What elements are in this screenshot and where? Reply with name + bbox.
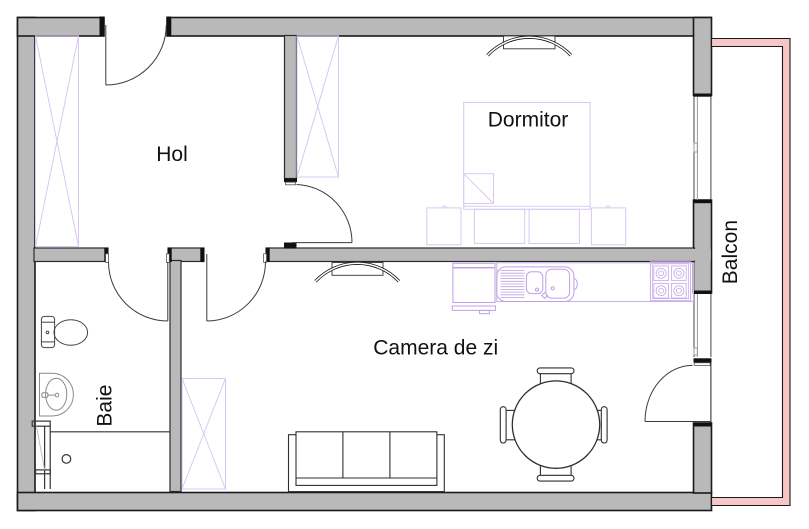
svg-text:Baie: Baie: [94, 385, 117, 427]
svg-text:Dormitor: Dormitor: [488, 109, 569, 132]
svg-text:Camera de zi: Camera de zi: [373, 337, 498, 360]
svg-text:Balcon: Balcon: [719, 220, 742, 284]
svg-text:Hol: Hol: [156, 143, 188, 166]
